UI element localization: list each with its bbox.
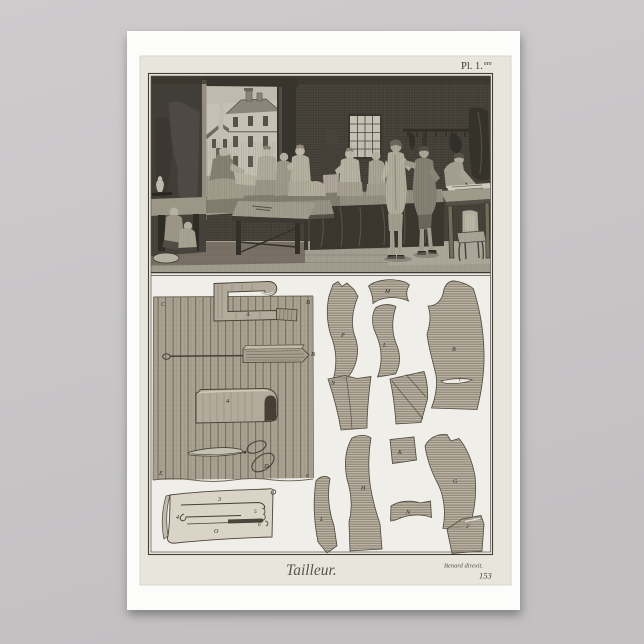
svg-text:Benard direxit.: Benard direxit.	[444, 563, 483, 570]
svg-text:L: L	[382, 343, 387, 349]
svg-text:C: C	[161, 301, 166, 308]
svg-text:L: L	[319, 517, 324, 523]
svg-text:B: B	[452, 347, 456, 353]
svg-text:e: e	[306, 472, 309, 479]
svg-text:3: 3	[217, 497, 221, 503]
svg-text:A: A	[245, 312, 250, 318]
svg-text:D: D	[263, 463, 269, 470]
svg-text:2: 2	[466, 524, 469, 530]
svg-text:6: 6	[258, 522, 261, 528]
svg-text:M: M	[384, 289, 391, 295]
svg-text:B: B	[306, 299, 310, 306]
svg-text:ere: ere	[484, 60, 492, 67]
svg-text:O: O	[214, 529, 219, 535]
svg-text:I: I	[458, 378, 461, 383]
svg-text:H: H	[360, 486, 366, 492]
svg-text:Pl. 1.: Pl. 1.	[461, 61, 483, 72]
svg-text:4: 4	[176, 514, 179, 521]
svg-text:E: E	[158, 470, 163, 477]
svg-text:P: P	[340, 333, 345, 339]
svg-text:G: G	[453, 479, 458, 485]
svg-text:B: B	[311, 351, 315, 358]
svg-text:5: 5	[254, 509, 257, 515]
svg-text:153: 153	[479, 571, 492, 581]
svg-text:Tailleur.: Tailleur.	[286, 562, 337, 579]
